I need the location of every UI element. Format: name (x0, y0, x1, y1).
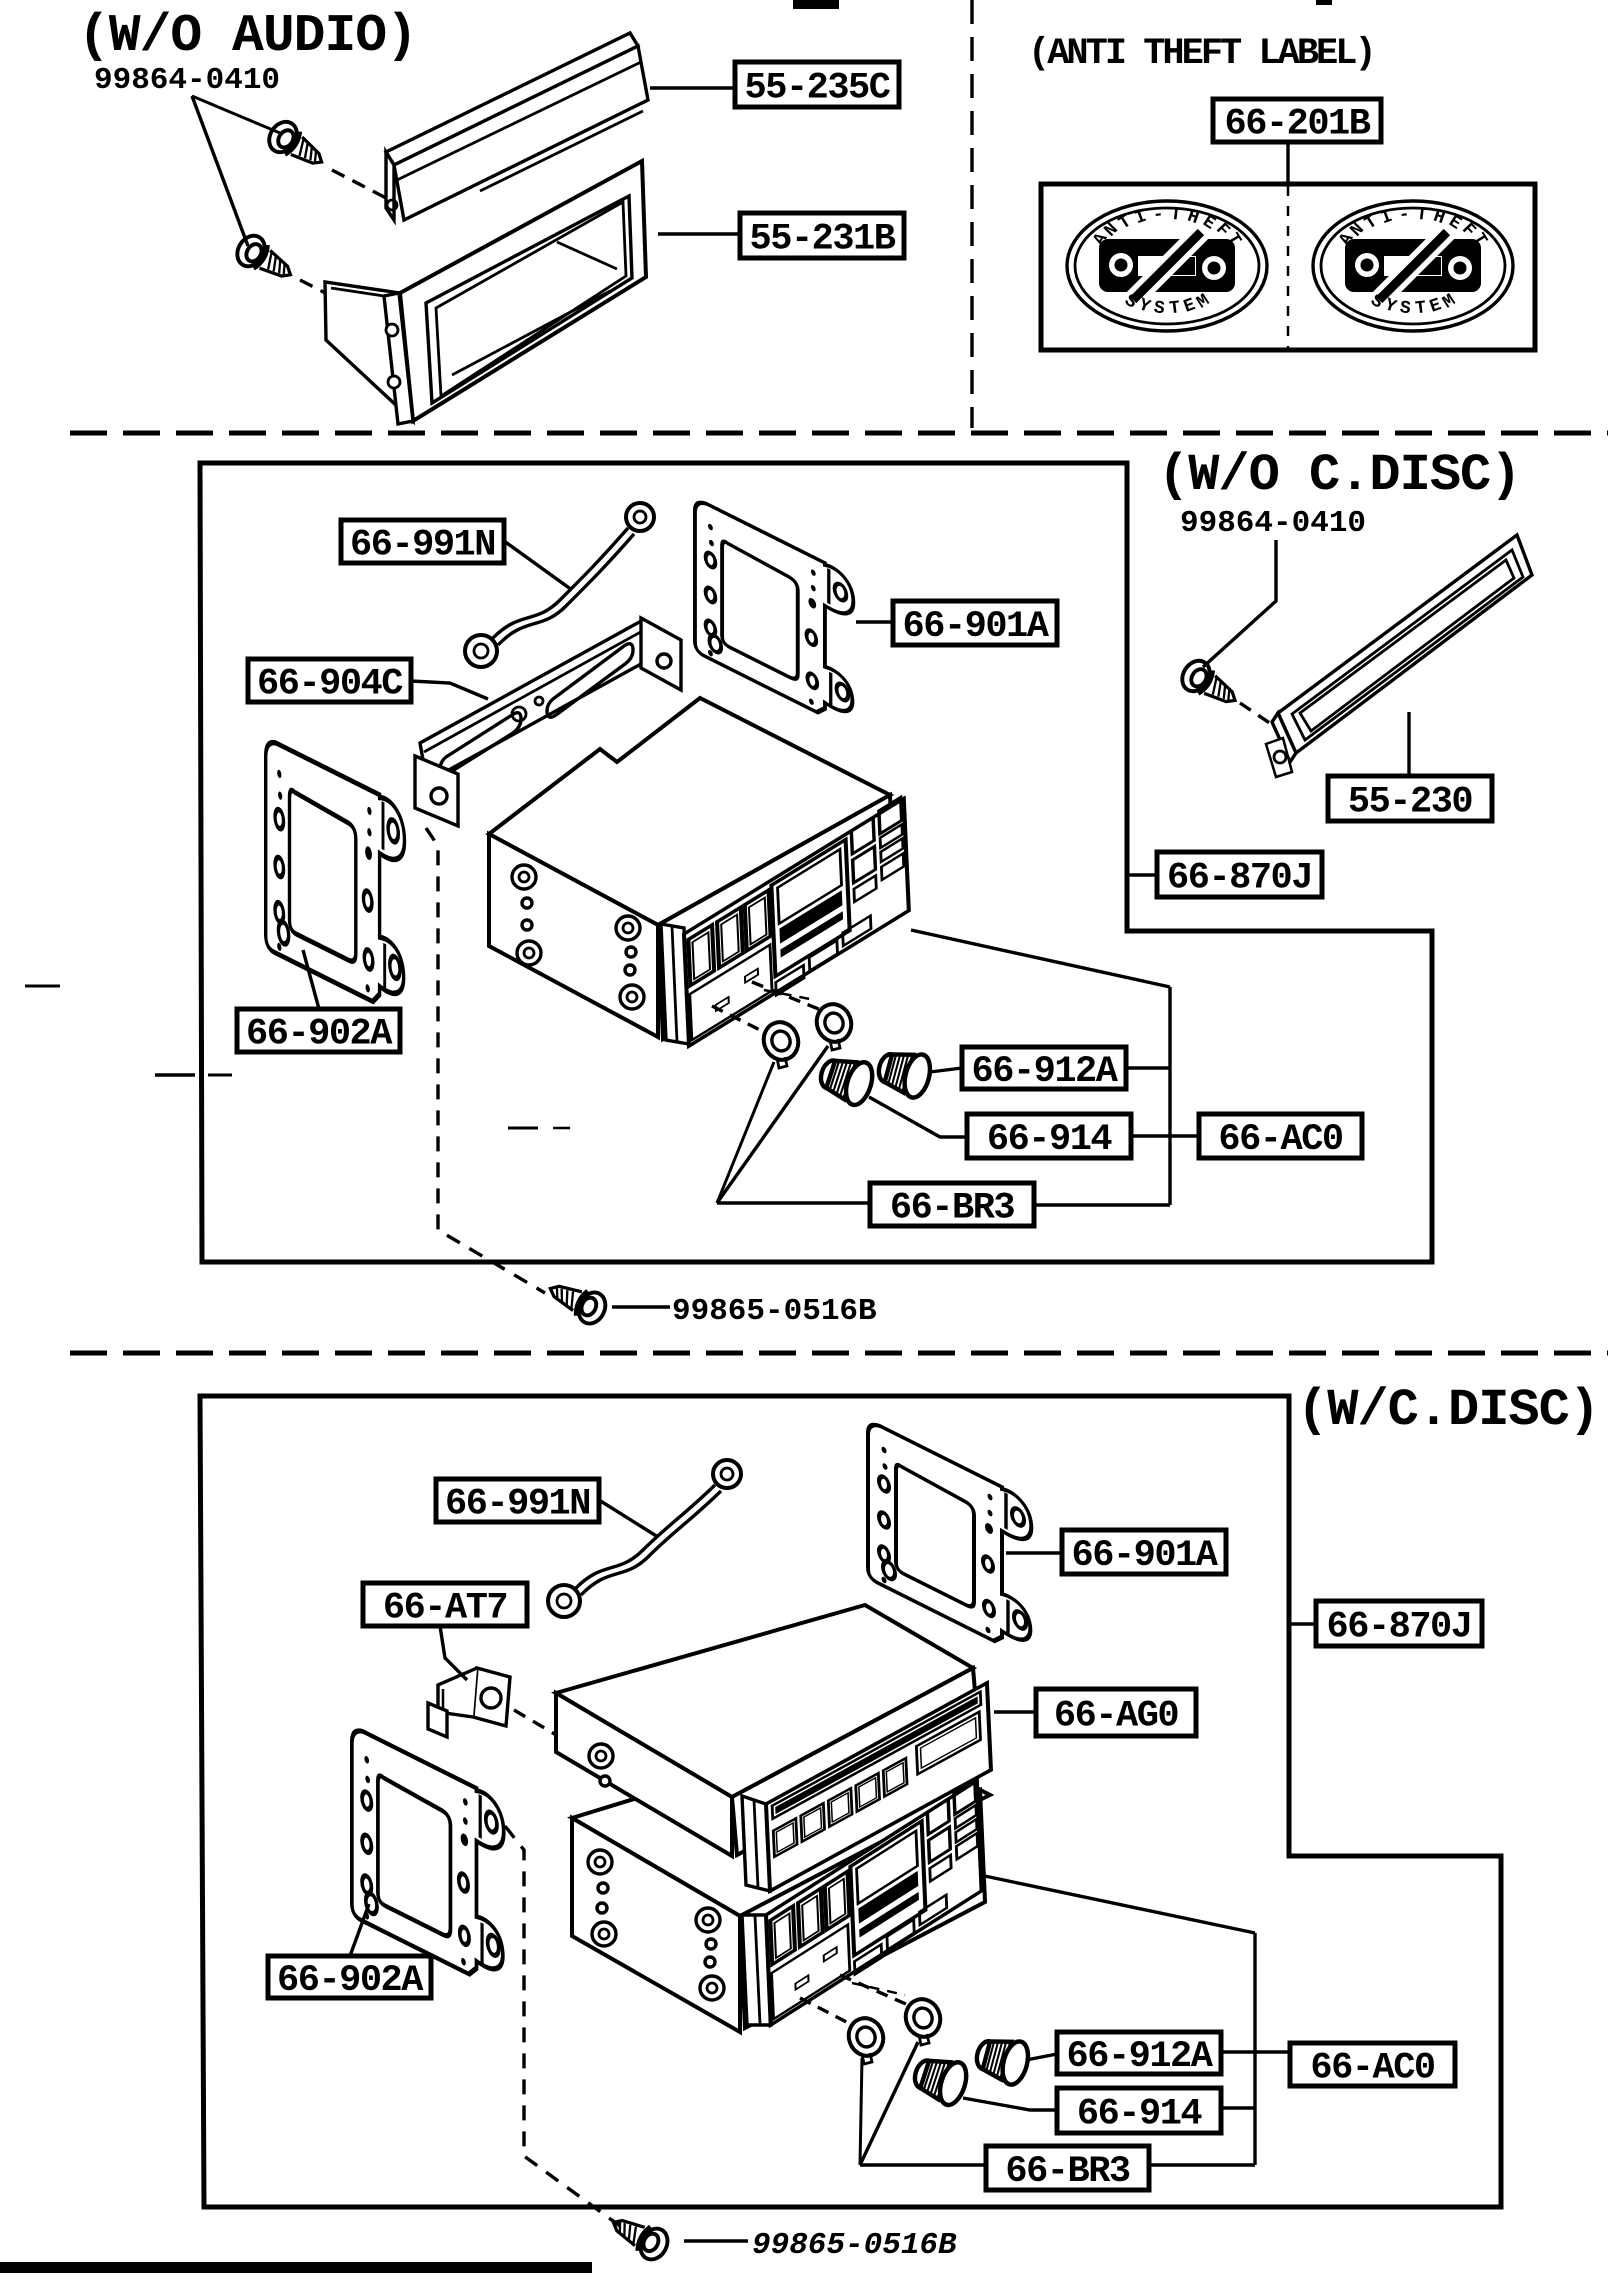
svg-text:66-904C: 66-904C (257, 664, 403, 706)
svg-text:(W/C.DISC): (W/C.DISC) (1297, 1381, 1599, 1440)
svg-text:55-235C: 55-235C (745, 68, 891, 110)
svg-text:66-901A: 66-901A (1072, 1535, 1219, 1577)
svg-text:99865-0516B: 99865-0516B (752, 2228, 957, 2263)
svg-text:(W/O C.DISC): (W/O C.DISC) (1158, 446, 1520, 505)
svg-text:-: - (1152, 205, 1165, 226)
svg-text:66-914: 66-914 (987, 1119, 1113, 1161)
svg-text:66-902A: 66-902A (277, 1960, 424, 2002)
svg-text:(ANTI THEFT LABEL): (ANTI THEFT LABEL) (1028, 33, 1374, 75)
svg-text:66-BR3: 66-BR3 (1005, 2151, 1130, 2193)
svg-text:99864-0410: 99864-0410 (94, 63, 280, 98)
svg-text:66-901A: 66-901A (903, 606, 1050, 648)
svg-text:66-991N: 66-991N (445, 1484, 590, 1526)
svg-text:66-AC0: 66-AC0 (1310, 2048, 1435, 2090)
svg-text:66-870J: 66-870J (1327, 1607, 1472, 1649)
svg-text:66-912A: 66-912A (972, 1051, 1119, 1093)
svg-text:-: - (1398, 205, 1411, 226)
svg-text:66-AT7: 66-AT7 (383, 1588, 507, 1630)
svg-text:66-991N: 66-991N (350, 525, 495, 567)
svg-text:66-AG0: 66-AG0 (1054, 1696, 1179, 1738)
svg-text:99864-0410: 99864-0410 (1180, 506, 1366, 541)
svg-text:66-912A: 66-912A (1067, 2036, 1214, 2078)
svg-text:66-902A: 66-902A (246, 1014, 393, 1056)
svg-text:66-914: 66-914 (1077, 2094, 1203, 2136)
svg-text:66-BR3: 66-BR3 (890, 1188, 1015, 1230)
svg-text:66-AC0: 66-AC0 (1218, 1119, 1343, 1161)
svg-text:66-870J: 66-870J (1167, 858, 1312, 900)
svg-text:66-201B: 66-201B (1225, 104, 1371, 146)
svg-text:99865-0516B: 99865-0516B (672, 1294, 877, 1329)
svg-text:55-230: 55-230 (1348, 782, 1473, 824)
svg-text:55-231B: 55-231B (750, 219, 896, 261)
svg-text:(W/O AUDIO): (W/O AUDIO) (78, 6, 417, 66)
